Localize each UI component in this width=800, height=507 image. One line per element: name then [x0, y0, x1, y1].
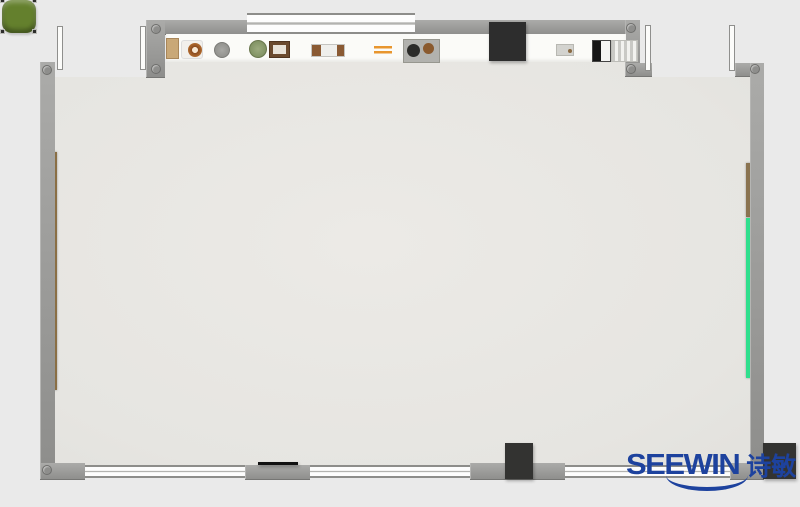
- bottom-mid-wall: [245, 465, 310, 480]
- tray-dot: [568, 49, 572, 53]
- door-leaf-top-left-a: [57, 26, 63, 70]
- logo-text-cn: 诗敏: [746, 455, 796, 480]
- tray-item-brown: [423, 43, 434, 54]
- shelf-item-bars-orange: [374, 46, 392, 54]
- room-floor: [55, 58, 750, 468]
- shelf-item-rolls: [311, 44, 345, 57]
- shelf-item-plant-green: [249, 40, 267, 58]
- left-wall: [40, 62, 55, 480]
- door-leaf-top-right-b: [729, 25, 735, 71]
- shelf-item-tray-dark: [403, 39, 440, 63]
- floor-plan-canvas: SEEWIN 诗敏: [0, 0, 800, 507]
- wall-corner-dot-3: [626, 23, 636, 33]
- wall-corner-dot-5: [750, 64, 760, 74]
- photo-inner: [273, 45, 286, 54]
- shelf-item-radiator: [611, 40, 638, 62]
- wall-corner-dot-4: [626, 64, 636, 74]
- chair-foot: [0, 29, 5, 34]
- wall-cabinet: [489, 22, 526, 61]
- desk-cluster-1: [178, 118, 258, 266]
- chair-foot: [32, 29, 37, 34]
- shelf-item-plate-donut: [181, 40, 203, 59]
- shelf-item-box-tan: [166, 38, 179, 59]
- chair-foot: [32, 0, 37, 3]
- wall-corner-dot-1: [151, 24, 161, 34]
- wall-corner-dot-2: [151, 64, 161, 74]
- logo-swoosh-icon: [666, 474, 748, 491]
- chair-foot: [0, 0, 5, 3]
- shelf-item-disc-gray: [214, 42, 230, 58]
- tray-item-dark: [407, 44, 420, 57]
- donut-icon: [188, 43, 202, 57]
- bottom-black-column: [505, 443, 533, 479]
- shelf-item-tray-small: [556, 44, 574, 56]
- student-chair-green: [2, 0, 36, 33]
- wall-corner-dot-0: [42, 65, 52, 75]
- bottom-window-2: [310, 465, 470, 478]
- wall-corner-dot-6: [42, 465, 52, 475]
- bottom-black-strip: [258, 462, 298, 465]
- door-leaf-top-right-a: [645, 25, 651, 71]
- seewin-logo: SEEWIN 诗敏: [626, 449, 800, 480]
- shelf-item-frame-photo: [269, 41, 290, 58]
- door-leaf-top-left-b: [140, 26, 146, 70]
- bottom-window-1: [85, 465, 245, 478]
- right-wall: [750, 63, 764, 480]
- shelf-item-device-bw: [592, 40, 611, 62]
- top-window: [247, 13, 415, 34]
